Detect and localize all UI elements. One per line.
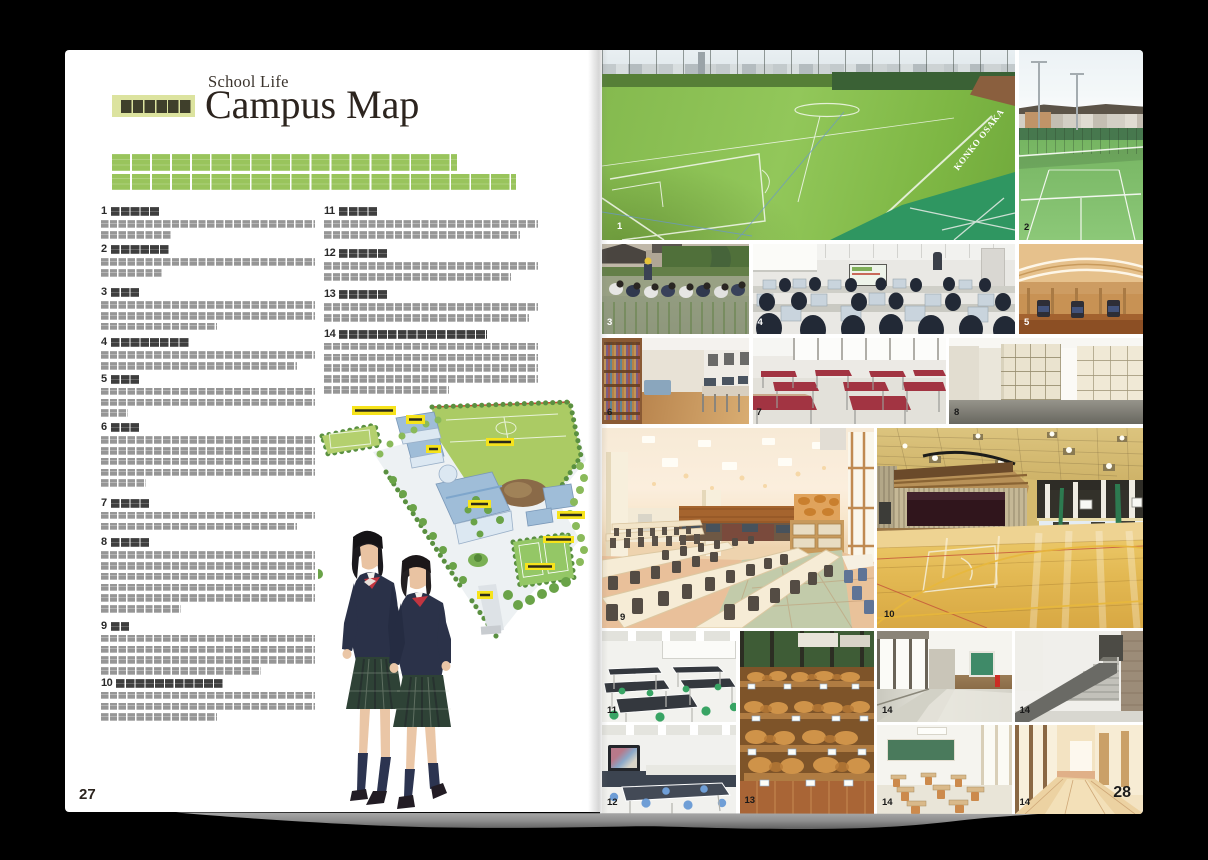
svg-text:KONKO OSAKA: KONKO OSAKA xyxy=(952,107,1006,173)
